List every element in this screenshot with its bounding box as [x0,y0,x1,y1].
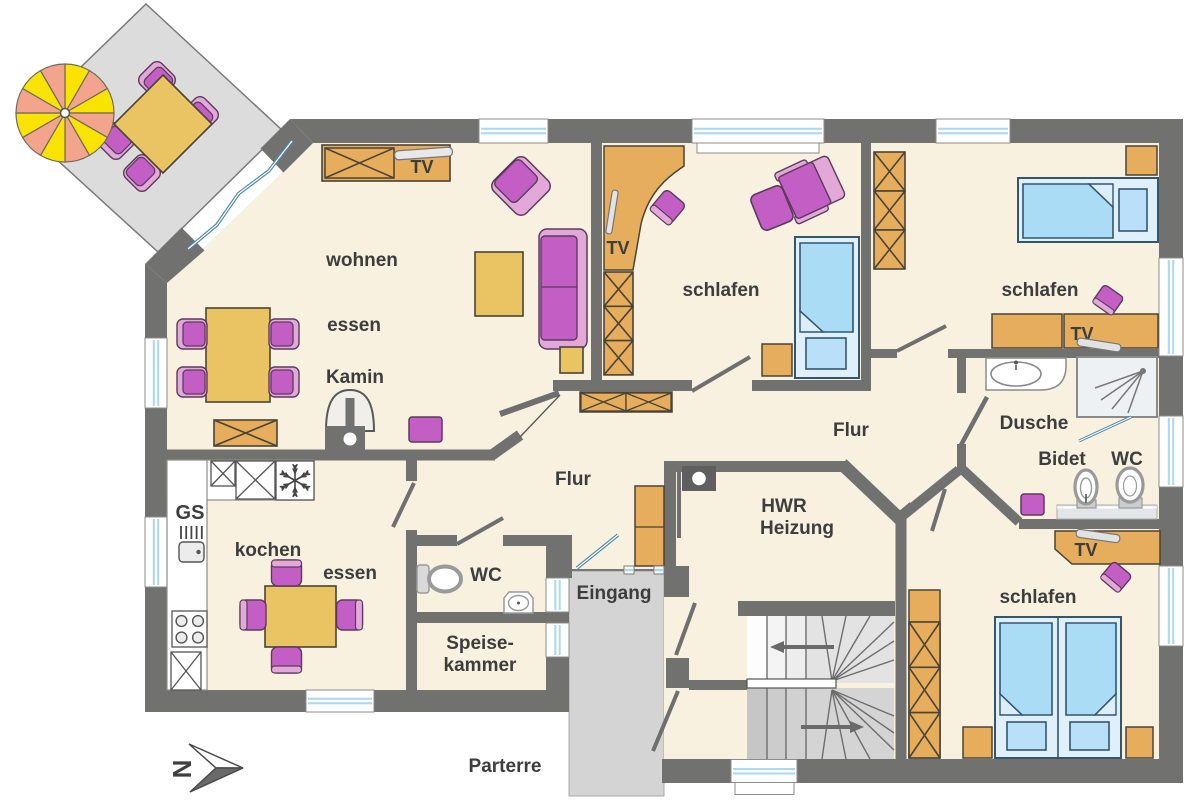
svg-text:Flur: Flur [833,420,869,441]
svg-text:Parterre: Parterre [469,756,542,777]
svg-text:TV: TV [1074,540,1097,560]
svg-text:Eingang: Eingang [577,583,652,604]
svg-text:kammer: kammer [444,655,517,676]
svg-text:TV: TV [410,157,433,177]
svg-text:schlafen: schlafen [1001,280,1078,301]
svg-text:WC: WC [1111,449,1143,470]
svg-text:schlafen: schlafen [999,587,1076,608]
svg-text:kochen: kochen [235,540,302,561]
svg-text:Kamin: Kamin [326,367,384,388]
svg-text:N: N [167,760,197,779]
svg-text:Speise-: Speise- [446,633,514,654]
svg-text:HWR: HWR [761,496,807,517]
svg-text:schlafen: schlafen [682,280,759,301]
svg-text:essen: essen [323,563,377,584]
svg-text:Heizung: Heizung [760,518,834,539]
svg-text:essen: essen [327,315,381,336]
svg-text:GS: GS [176,502,205,524]
svg-text:Bidet: Bidet [1038,449,1086,470]
svg-text:Flur: Flur [555,469,591,490]
svg-text:Dusche: Dusche [1000,413,1069,434]
svg-text:TV: TV [606,238,629,258]
svg-text:wohnen: wohnen [325,250,398,271]
svg-text:WC: WC [470,565,502,586]
